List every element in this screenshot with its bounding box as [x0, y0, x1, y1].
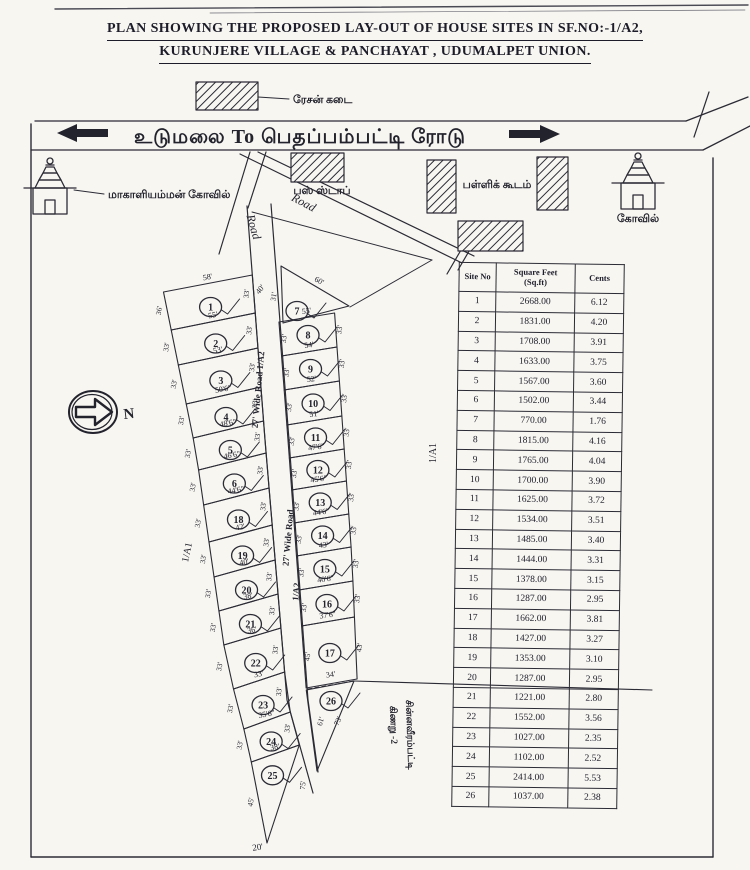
plot-number: 7 — [295, 307, 300, 318]
plot-top-dimension: 34' — [325, 669, 336, 679]
plot-side-dimension: 45' — [245, 796, 256, 807]
plot-top-dimension: 47'6" — [307, 441, 325, 452]
cell-site-no: 15 — [455, 569, 492, 589]
cell-site-no: 25 — [452, 766, 489, 786]
surveyor-tick-mark — [241, 442, 259, 457]
col-header-cents: Cents — [575, 264, 624, 294]
plot-side-dimension: 33' — [169, 378, 180, 389]
cell-site-no: 14 — [455, 549, 492, 569]
cell-sqft: 1552.00 — [490, 708, 569, 729]
north-letter: N — [123, 406, 136, 423]
cell-sqft: 2668.00 — [496, 292, 575, 313]
plot-side-dimension: 33' — [252, 431, 262, 441]
plot-top-dimension: 48'6" — [219, 417, 237, 429]
table-row: 10 1700.00 3.90 — [456, 470, 621, 492]
table-row: 15 1378.00 3.15 — [455, 569, 620, 591]
col-header-square-feet: Square Feet (Sq.ft) — [496, 263, 575, 293]
north-indicator: N — [69, 391, 135, 433]
table-row: 1 2668.00 6.12 — [459, 291, 624, 313]
diag-road-left-label: Road — [243, 212, 264, 242]
plot-top-dimension: 46'6" — [223, 449, 241, 461]
surveyor-tick-mark — [342, 693, 360, 708]
scan-edge-line — [210, 10, 745, 13]
plot-side-dimension: 33' — [289, 468, 299, 479]
cell-sqft: 770.00 — [494, 411, 573, 432]
cell-sqft: 1102.00 — [489, 747, 568, 768]
cell-cents: 2.35 — [569, 728, 618, 748]
plot-side-dimension: 33' — [296, 567, 306, 578]
temple-left-pointer — [74, 190, 104, 194]
cell-cents: 3.91 — [574, 333, 623, 353]
cell-site-no: 16 — [454, 588, 491, 608]
school-building-1 — [427, 160, 456, 213]
plot-side-dimension: 33' — [264, 571, 274, 581]
table-row: 7 770.00 1.76 — [457, 410, 622, 432]
table-row: 19 1353.00 3.10 — [454, 648, 619, 670]
plot-polygon — [251, 745, 299, 843]
cell-cents: 3.10 — [570, 649, 619, 669]
cell-site-no: 6 — [457, 390, 494, 410]
plot-top-dimension: 42' — [235, 522, 246, 533]
cell-site-no: 5 — [458, 371, 495, 391]
cell-sqft: 1567.00 — [495, 371, 574, 392]
plot-side-dimension: 33' — [234, 739, 245, 750]
plot-top-dimension: 55' — [301, 306, 312, 316]
cell-site-no: 23 — [453, 727, 490, 747]
plot-side-dimension: 33' — [291, 501, 301, 512]
cell-site-no: 21 — [453, 687, 490, 707]
cell-site-no: 13 — [455, 529, 492, 549]
plot-side-dimension: 33' — [193, 517, 204, 528]
cell-site-no: 10 — [456, 470, 493, 490]
cell-sqft: 1287.00 — [491, 589, 570, 610]
cell-site-no: 18 — [454, 628, 491, 648]
plot-number: 17 — [325, 649, 335, 660]
cell-sqft: 1708.00 — [495, 331, 574, 352]
cell-sqft: 1502.00 — [494, 391, 573, 412]
east-arrow-icon — [509, 125, 560, 143]
plot-side-dimension: 33' — [294, 534, 304, 545]
plot-side-dimension: 33' — [203, 588, 214, 599]
plot-side-dimension: 45' — [302, 651, 312, 662]
cell-sqft: 1027.00 — [490, 727, 569, 748]
temple-icon — [24, 158, 76, 214]
surveyor-tick-mark — [267, 655, 285, 670]
cell-site-no: 20 — [453, 667, 490, 687]
cell-sqft: 1765.00 — [493, 450, 572, 471]
plot-top-dimension: 53' — [212, 345, 223, 356]
cell-cents: 3.81 — [570, 610, 619, 630]
diag-road-left-line1 — [219, 152, 250, 254]
table-row: 18 1427.00 3.27 — [454, 628, 619, 650]
cell-sqft: 2414.00 — [489, 767, 568, 788]
survey-label-right: 1/A1 — [428, 443, 439, 463]
plot-top-dimension: 36' — [247, 625, 258, 636]
cell-site-no: 19 — [454, 648, 491, 668]
table-row: 13 1485.00 3.40 — [455, 529, 620, 551]
table-row: 12 1534.00 3.51 — [456, 509, 621, 531]
plot-side-dimension: 33' — [284, 402, 294, 413]
plot-number: 26 — [326, 697, 336, 708]
cell-sqft: 1534.00 — [493, 510, 572, 531]
wedge-line2 — [350, 260, 432, 307]
plot-top-dimension: 40'6" — [317, 573, 335, 584]
plot-number: 16 — [322, 600, 332, 611]
table-row: 17 1662.00 3.81 — [454, 608, 619, 630]
cell-cents: 4.16 — [573, 432, 622, 452]
plot-side-dimension: 33' — [339, 393, 349, 404]
cell-sqft: 1662.00 — [491, 609, 570, 630]
plot-top-dimension: 58' — [202, 272, 213, 283]
table-row: 26 1037.00 2.38 — [452, 786, 617, 808]
cell-site-no: 24 — [452, 747, 489, 767]
cell-site-no: 9 — [456, 450, 493, 470]
plot-side-dimension: 33' — [346, 492, 356, 503]
table-row: 11 1625.00 3.72 — [456, 489, 621, 511]
table-row: 22 1552.00 3.56 — [453, 707, 618, 729]
cell-cents: 3.51 — [572, 511, 621, 531]
table-row: 4 1633.00 3.75 — [458, 351, 623, 373]
west-arrow-icon — [57, 124, 108, 142]
plot-side-dimension: 33' — [244, 325, 254, 335]
plot-side-dimension: 33' — [270, 644, 280, 654]
cell-sqft: 1378.00 — [492, 569, 571, 590]
table-row: 20 1287.00 2.95 — [453, 667, 618, 689]
cell-cents: 4.20 — [574, 313, 623, 333]
table-row: 9 1765.00 4.04 — [456, 450, 621, 472]
cell-sqft: 1221.00 — [490, 688, 569, 709]
plot-side-dimension: 33' — [255, 465, 265, 475]
cell-cents: 3.44 — [573, 392, 622, 412]
cell-cents: 3.75 — [574, 352, 623, 372]
table-row: 16 1287.00 2.95 — [454, 588, 619, 610]
plot-side-dimension: 33' — [341, 427, 351, 438]
cell-cents: 4.04 — [572, 451, 621, 471]
plot-side-dimension: 61' — [315, 715, 326, 727]
plot-side-dimension: 33' — [274, 686, 284, 696]
surveyor-tick-mark — [249, 512, 267, 527]
plot-top-dimension: 55' — [207, 310, 218, 321]
plot-side-dimension: 33' — [258, 501, 268, 511]
cell-cents: 3.27 — [570, 630, 619, 650]
cell-cents: 3.72 — [572, 491, 621, 511]
cell-sqft: 1815.00 — [494, 430, 573, 451]
cell-site-no: 1 — [459, 291, 496, 311]
ration-shop-building — [196, 82, 258, 110]
temple-left-label: மாகாளியம்மன் கோவில் — [108, 189, 230, 201]
cell-site-no: 4 — [458, 351, 495, 371]
cell-sqft: 1485.00 — [492, 529, 571, 550]
cell-cents: 5.53 — [568, 768, 617, 788]
plot-side-dimension: 33' — [337, 358, 347, 369]
ration-shop-pointer — [258, 97, 289, 99]
plot-side-dimension: 33' — [250, 398, 260, 408]
surveyor-tick-mark — [227, 336, 245, 351]
table-row: 5 1567.00 3.60 — [458, 371, 623, 393]
plot-side-dimension: 33' — [299, 602, 309, 613]
surveyor-tick-mark — [284, 767, 302, 782]
cell-cents: 1.76 — [573, 412, 622, 432]
table-row: 23 1027.00 2.35 — [453, 727, 618, 749]
table-row: 8 1815.00 4.16 — [457, 430, 622, 452]
cell-site-no: 7 — [457, 410, 494, 430]
table-header-row: Site No Square Feet (Sq.ft) Cents — [459, 262, 624, 293]
plot-side-dimension: 33' — [161, 341, 172, 352]
plot-number: 25 — [268, 771, 278, 782]
plot-side-dimension: 33' — [279, 333, 289, 344]
plot-side-dimension: 33' — [225, 703, 236, 714]
wedge-line1 — [252, 212, 432, 260]
cell-site-no: 26 — [452, 786, 489, 806]
float-dim-label: 40' — [254, 282, 267, 295]
table-row: 6 1502.00 3.44 — [457, 390, 622, 412]
plot-side-dimension: 33' — [261, 537, 271, 547]
cell-cents: 3.60 — [574, 372, 623, 392]
bus-stop-label: பஸ் ஸ்டாப் — [293, 185, 350, 197]
plot-side-dimension: 43' — [354, 642, 364, 653]
cell-site-no: 11 — [456, 489, 493, 509]
plot-side-dimension: 33' — [351, 558, 361, 569]
cell-cents: 2.52 — [568, 748, 617, 768]
surveyor-tick-mark — [258, 582, 276, 597]
table-row: 2 1831.00 4.20 — [458, 311, 623, 333]
plot-top-dimension: 38' — [243, 591, 254, 602]
cell-site-no: 8 — [457, 430, 494, 450]
main-road-bottom-ext — [703, 126, 750, 150]
scan-edge-line — [55, 5, 748, 9]
cell-cents: 6.12 — [575, 293, 624, 313]
table-row: 24 1102.00 2.52 — [452, 747, 617, 769]
well-label-line2: சின்னவீரம்பட்டி — [403, 700, 417, 772]
cell-cents: 2.95 — [570, 590, 619, 610]
cell-cents: 3.40 — [571, 531, 620, 551]
plot-side-dimension: 33' — [198, 553, 209, 564]
cell-site-no: 3 — [458, 331, 495, 351]
cell-sqft: 1625.00 — [493, 490, 572, 511]
plot-top-dimension: 43' — [318, 540, 329, 550]
plot-top-dimension: 44'6" — [227, 484, 245, 496]
plot-side-dimension: 33' — [348, 525, 358, 536]
surveyor-tick-mark — [245, 476, 263, 491]
plot-top-dimension: 44'6" — [312, 506, 330, 517]
survey-label-left: 1/A1 — [180, 542, 195, 564]
plot-top-dimension: 45'6" — [310, 473, 328, 484]
cell-cents: 2.38 — [568, 788, 617, 808]
surveyor-tick-mark — [254, 548, 272, 563]
plot-side-dimension: 33' — [287, 436, 297, 447]
plot-side-dimension: 33' — [183, 448, 194, 459]
cell-site-no: 2 — [458, 311, 495, 331]
cell-cents: 3.90 — [572, 471, 621, 491]
scanned-layout-plan: PLAN SHOWING THE PROPOSED LAY-OUT OF HOU… — [0, 0, 750, 870]
bus-stop-building — [291, 153, 344, 182]
school-label: பள்ளிக் கூடம் — [463, 179, 532, 191]
temple-right-label: கோவில் — [617, 213, 659, 225]
cell-sqft: 1037.00 — [489, 787, 568, 808]
well-label-line1: கிணறு -2 — [387, 706, 400, 745]
table-row: 3 1708.00 3.91 — [458, 331, 623, 353]
ration-shop-label: ரேசன் கடை — [293, 94, 352, 106]
cell-sqft: 1633.00 — [495, 351, 574, 372]
plot-side-dimension: 33' — [281, 367, 291, 378]
cell-site-no: 22 — [453, 707, 490, 727]
plot-side-dimension: 33' — [334, 324, 344, 335]
table-row: 25 2414.00 5.53 — [452, 766, 617, 788]
bottom-tip-dim: 20' — [252, 841, 264, 852]
table-row: 21 1221.00 2.80 — [453, 687, 618, 709]
plot-top-dimension: 52' — [306, 374, 317, 384]
plot-side-dimension: 33' — [247, 362, 257, 372]
plot-polygon — [281, 266, 349, 323]
cell-site-no: 12 — [456, 509, 493, 529]
temple-icon — [612, 153, 664, 209]
plot-polygon — [306, 681, 354, 771]
school-building-3 — [458, 221, 523, 251]
plot-top-dimension: 54' — [304, 340, 315, 350]
cell-sqft: 1831.00 — [495, 312, 574, 333]
main-road-break — [694, 92, 709, 137]
plot-side-dimension: 33' — [352, 593, 362, 604]
plot-side-dimension: 75' — [298, 780, 308, 790]
surveyor-tick-mark — [232, 373, 250, 388]
cell-cents: 2.95 — [569, 669, 618, 689]
plot-number: 22 — [251, 659, 261, 670]
cell-cents: 2.80 — [569, 689, 618, 709]
school-building-2 — [537, 157, 568, 210]
plot-side-dimension: 33' — [214, 661, 225, 672]
plot-side-dimension: 33' — [282, 723, 292, 733]
cell-sqft: 1427.00 — [491, 628, 570, 649]
plot-side-dimension: 33' — [208, 622, 219, 633]
cell-cents: 3.56 — [569, 709, 618, 729]
main-road-top-ext — [686, 97, 748, 121]
surveyor-tick-mark — [222, 299, 240, 314]
site-area-table: Site No Square Feet (Sq.ft) Cents 1 2668… — [451, 262, 625, 809]
plot-top-dimension: 38' — [269, 742, 280, 753]
plot-side-dimension: 33' — [267, 605, 277, 615]
col-header-site-no: Site No — [459, 262, 496, 292]
cell-sqft: 1353.00 — [491, 648, 570, 669]
plot-top-dimension: 40' — [239, 557, 250, 568]
cell-sqft: 1700.00 — [493, 470, 572, 491]
plot-side-dimension: 33' — [241, 288, 251, 298]
plot-top-dimension: 37'6" — [319, 609, 337, 620]
plot-top-dimension: 51' — [309, 409, 320, 419]
cell-sqft: 1287.00 — [490, 668, 569, 689]
table-row: 14 1444.00 3.31 — [455, 549, 620, 571]
diag-road-left-line2 — [248, 152, 266, 208]
cell-site-no: 17 — [454, 608, 491, 628]
plot-side-dimension: 33' — [176, 415, 187, 426]
main-road-label: உடுமலை To பெதப்பம்பட்டி ரோடு — [134, 126, 466, 150]
north-arrow-icon — [76, 399, 112, 425]
plot-side-dimension: 36' — [154, 305, 165, 316]
cell-cents: 3.31 — [571, 550, 620, 570]
plot-side-dimension: 33' — [187, 481, 198, 492]
plot-side-dimension: 73' — [332, 715, 344, 727]
cell-cents: 3.15 — [571, 570, 620, 590]
cell-sqft: 1444.00 — [492, 549, 571, 570]
plan-drawing: ரேசன் கடை உடுமலை To பெதப்பம்பட்டி ரோடு R… — [0, 0, 750, 870]
plot-side-dimension: 33' — [344, 459, 354, 470]
plot-top-dimension: 50'6" — [214, 383, 232, 395]
